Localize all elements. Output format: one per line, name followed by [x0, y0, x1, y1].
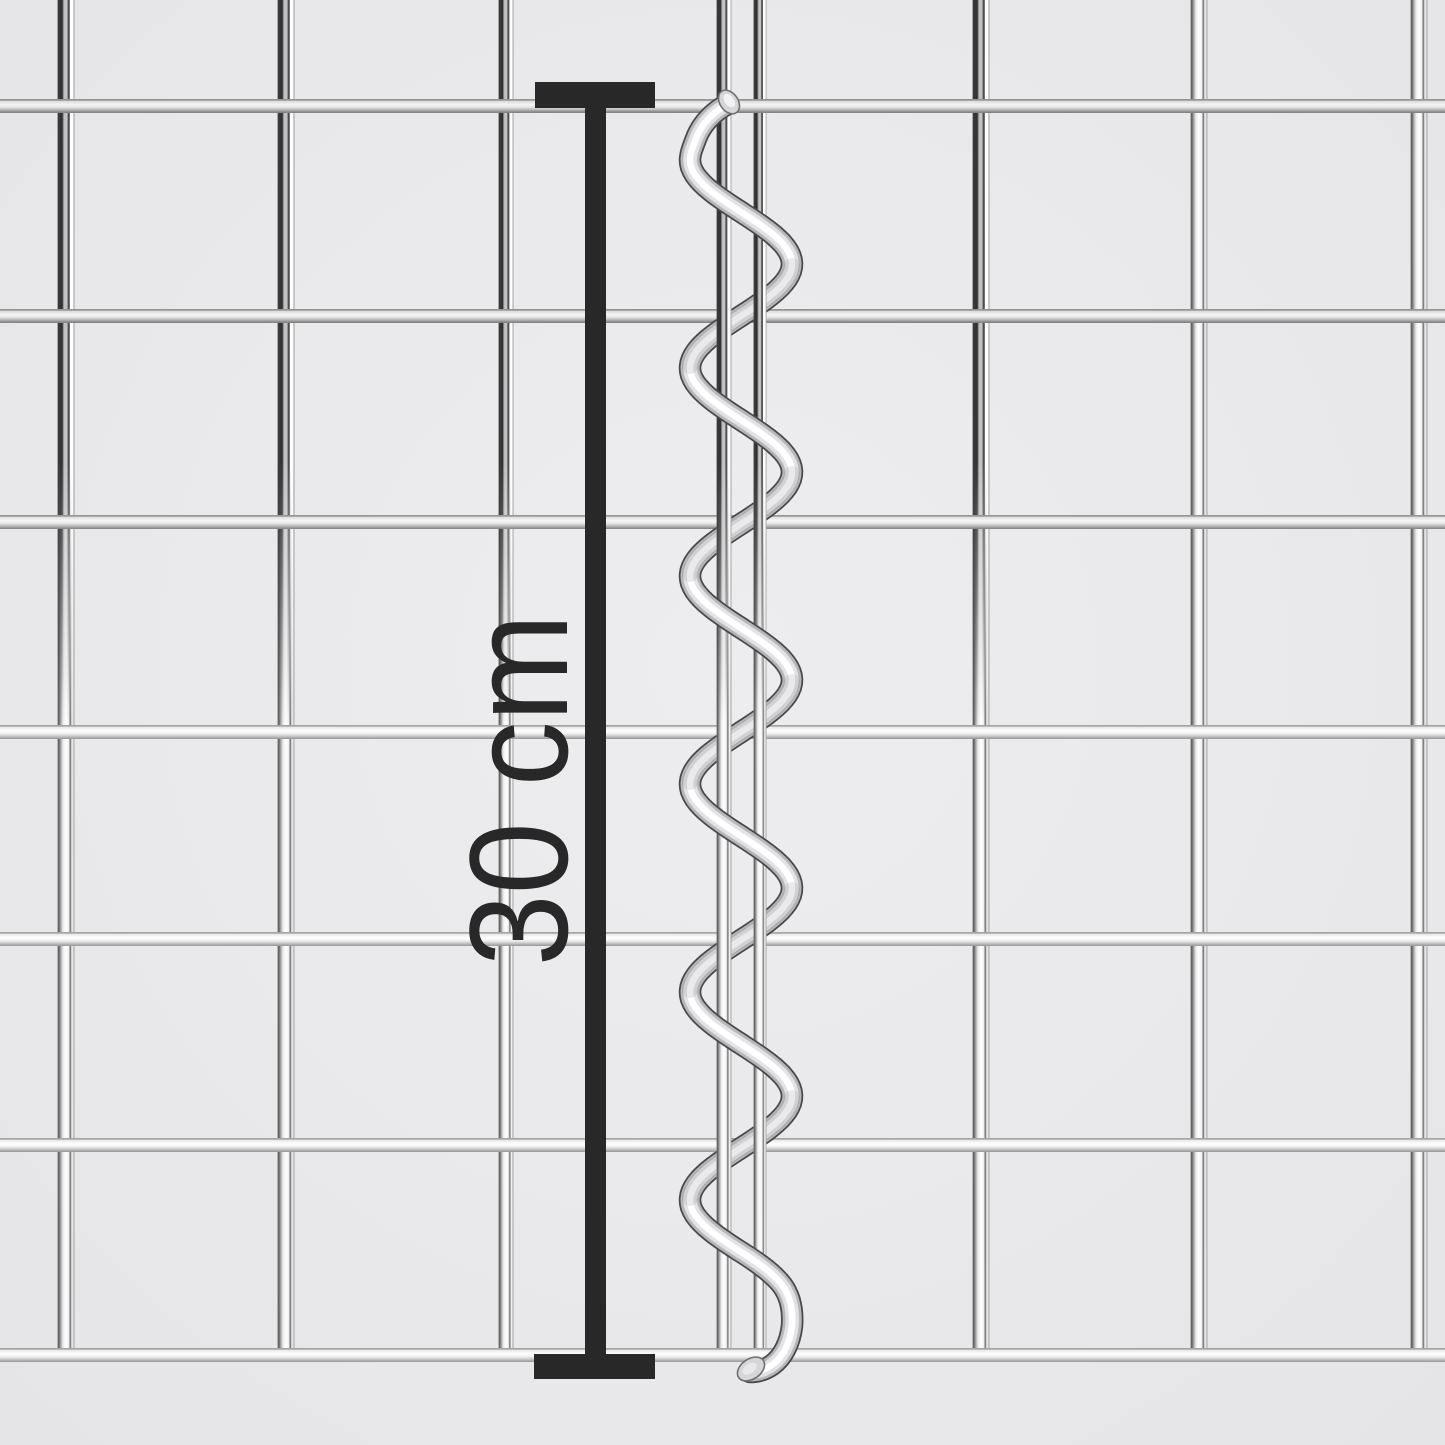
svg-text:30 cm: 30 cm	[440, 614, 597, 967]
